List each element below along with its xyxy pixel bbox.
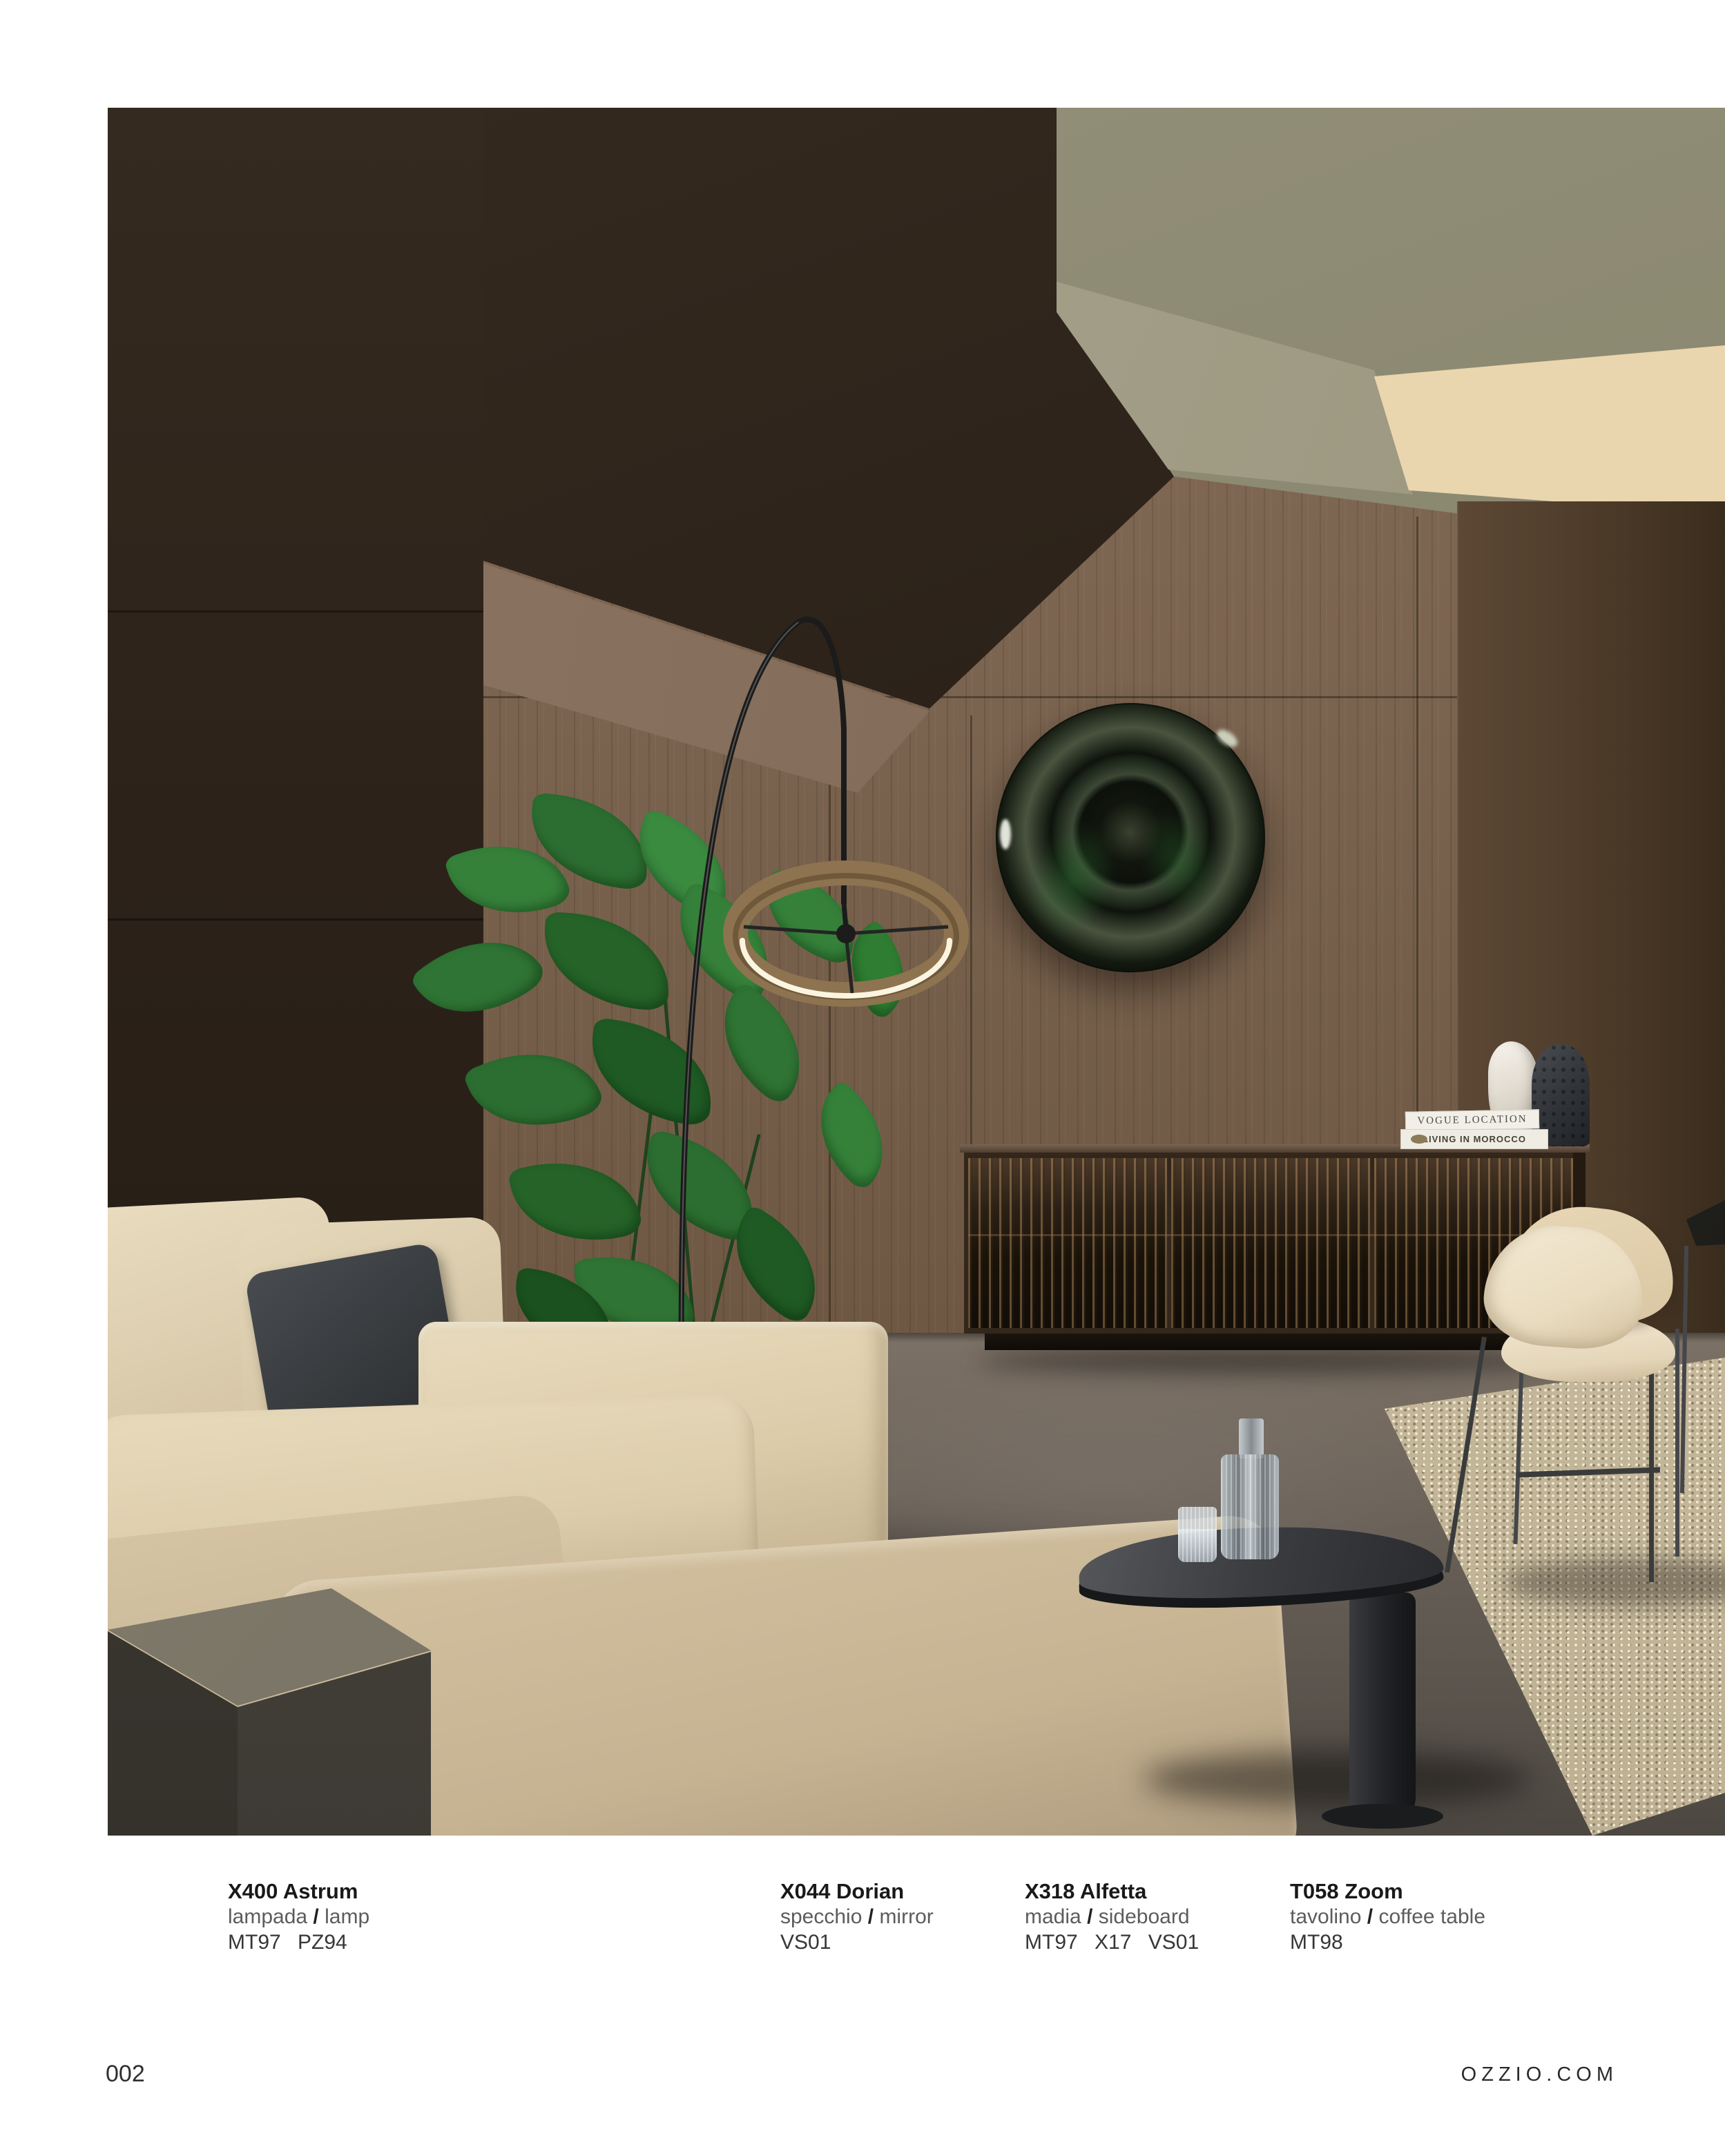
product-finishes: MT98: [1290, 1929, 1485, 1955]
product-type: tavolino / coffee table: [1290, 1904, 1485, 1929]
product-name: X400 Astrum: [228, 1878, 369, 1904]
lamp-arc-stem: [682, 619, 844, 1442]
page-number: 002: [106, 2061, 145, 2088]
catalog-page: { "page": { "number": "002", "website": …: [0, 0, 1725, 2156]
product-finishes: MT97 PZ94: [228, 1929, 369, 1955]
coffee-table-base: [1349, 1592, 1416, 1827]
product-type: madia / sideboard: [1025, 1904, 1199, 1929]
product-name: X318 Alfetta: [1025, 1878, 1199, 1904]
chair-leg: [1675, 1329, 1679, 1557]
slash: /: [1367, 1905, 1373, 1928]
caption-astrum: X400 Astrum lampada / lamp MT97 PZ94: [228, 1878, 369, 1955]
caption-dorian: X044 Dorian specchio / mirror VS01: [780, 1878, 934, 1955]
chair-leg: [1649, 1344, 1654, 1582]
water-glass: [1178, 1507, 1217, 1562]
product-type: specchio / mirror: [780, 1904, 934, 1929]
product-finishes: VS01: [780, 1929, 934, 1955]
carafe-neck: [1239, 1418, 1264, 1459]
coffee-table-foot: [1322, 1804, 1443, 1829]
product-name: X044 Dorian: [780, 1878, 934, 1904]
slash: /: [868, 1905, 874, 1928]
coffee-table-shadow: [1144, 1751, 1530, 1807]
slash: /: [1087, 1905, 1092, 1928]
slash: /: [313, 1905, 318, 1928]
lamp-hub: [836, 924, 856, 943]
carafe-body: [1221, 1454, 1279, 1559]
caption-zoom: T058 Zoom tavolino / coffee table MT98: [1290, 1878, 1485, 1955]
caption-alfetta: X318 Alfetta madia / sideboard MT97 X17 …: [1025, 1878, 1199, 1955]
product-finishes: MT97 X17 VS01: [1025, 1929, 1199, 1955]
product-name: T058 Zoom: [1290, 1878, 1485, 1904]
catalog-photo: VOGUE LOCATION LIVING IN MOROCCO: [108, 108, 1725, 1836]
website-label: OZZIO.COM: [1461, 2063, 1618, 2086]
product-type: lampada / lamp: [228, 1904, 369, 1929]
